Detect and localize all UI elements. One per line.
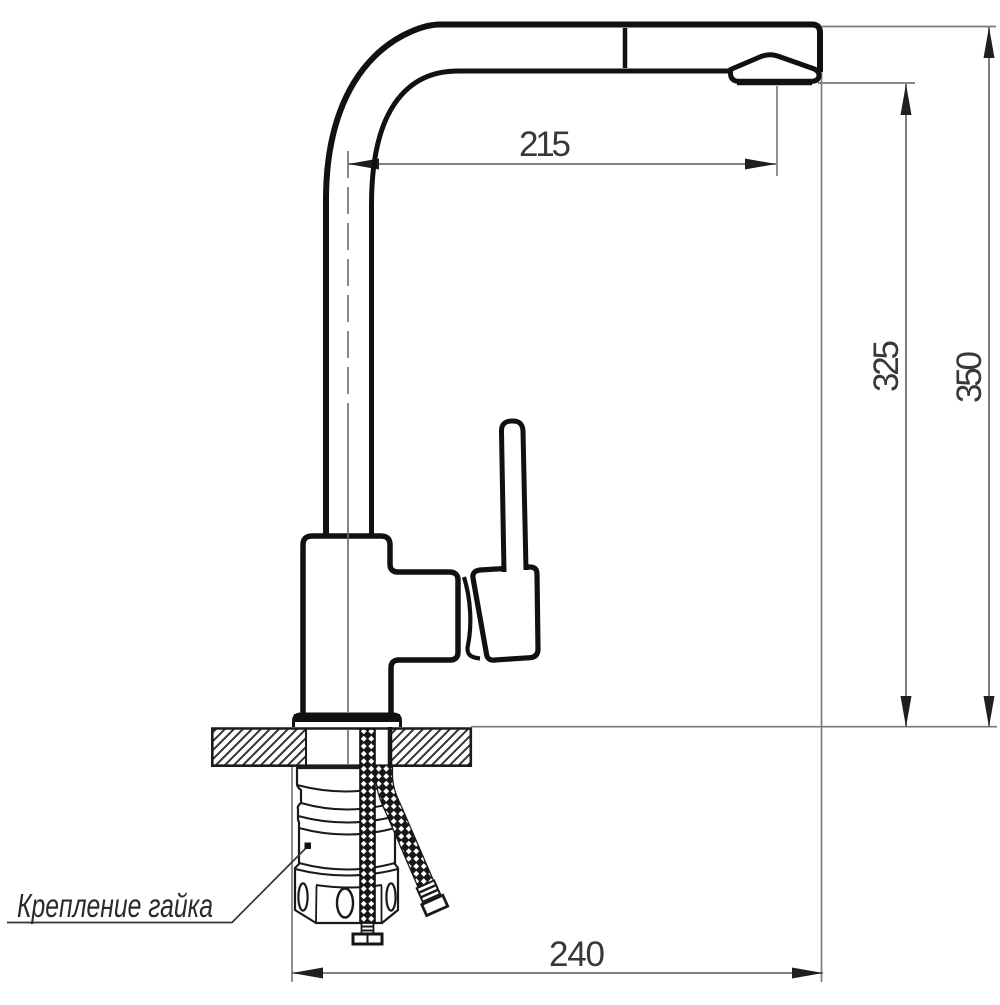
svg-text:325: 325 (867, 340, 906, 392)
svg-text:240: 240 (549, 935, 605, 974)
svg-text:Крепление гайка: Крепление гайка (17, 887, 213, 924)
svg-text:215: 215 (519, 125, 571, 164)
svg-text:350: 350 (950, 351, 989, 403)
